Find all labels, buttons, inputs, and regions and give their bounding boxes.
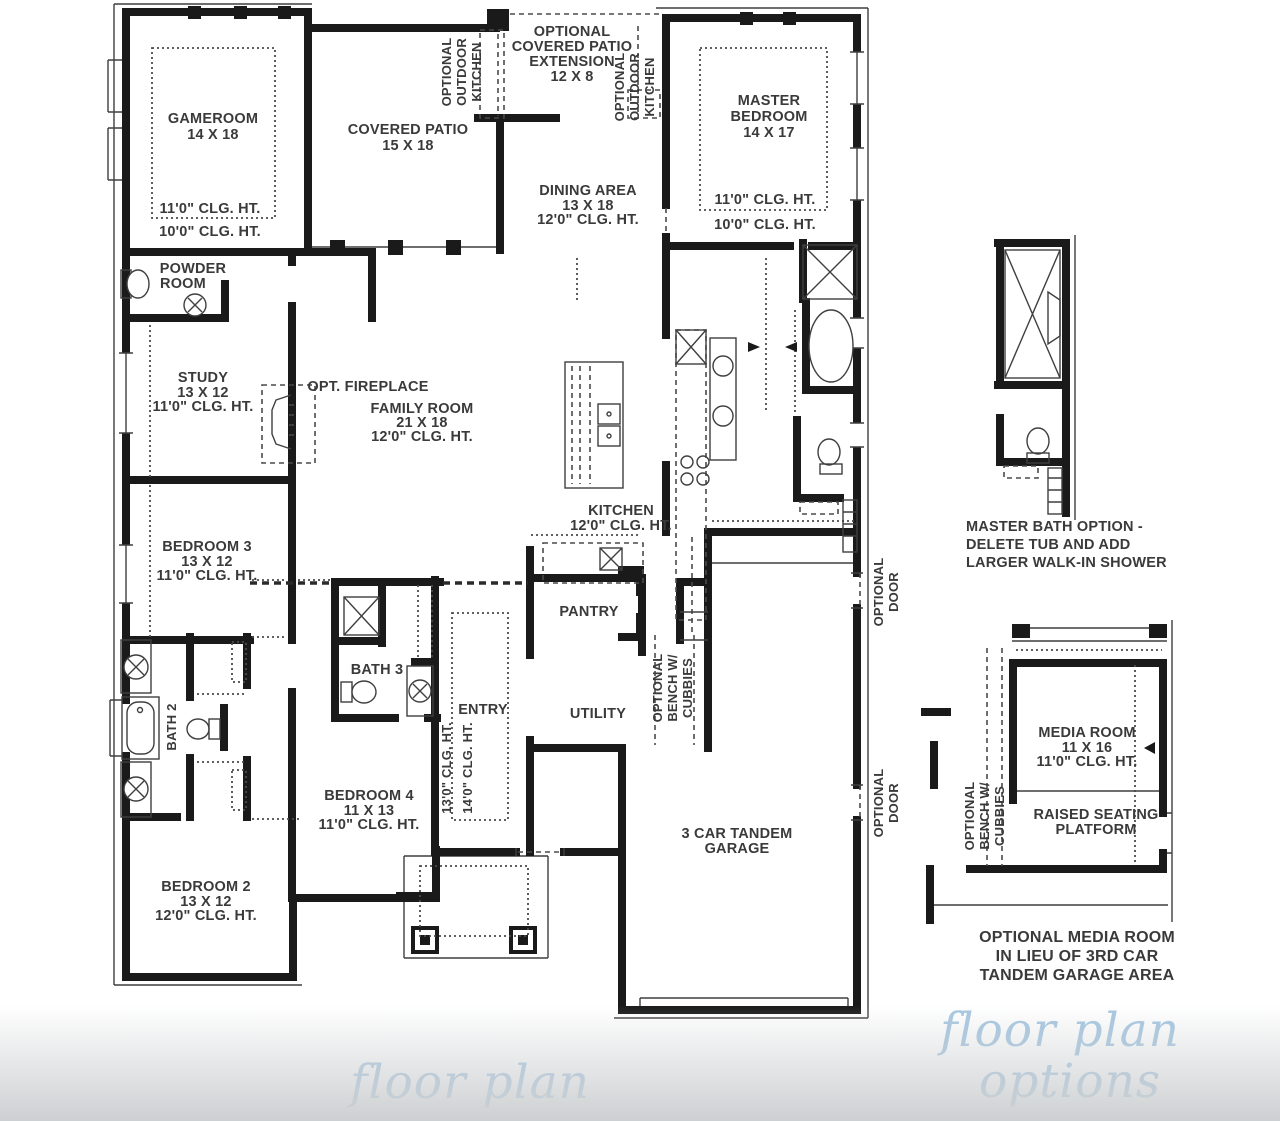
closet-rod-arrows: [748, 342, 797, 352]
master-bath-option-caption: MASTER BATH OPTION - DELETE TUB AND ADD …: [966, 519, 1167, 571]
outdoor-kitchen-right-label: KITCHEN: [642, 57, 657, 116]
post: [740, 12, 753, 25]
floor-plan-options-caption: floor plan: [937, 1003, 1180, 1058]
powder-toilet-icon: [184, 294, 206, 316]
master-vanity-icon: [710, 338, 736, 460]
options-bench-label: BENCH W/: [977, 782, 992, 850]
bath2-toilet-icon: [187, 719, 220, 739]
options-bench-label: CUBBIES: [992, 786, 1007, 846]
bench-cubbies-label: OPTIONAL: [650, 654, 665, 723]
bath3-label: BATH 3: [351, 662, 404, 678]
study-label: STUDY: [178, 370, 228, 386]
fireplace-label: OPT. FIREPLACE: [307, 379, 428, 395]
bath2-label: BATH 2: [164, 703, 179, 750]
bedroom3-label: BEDROOM 3: [162, 539, 252, 555]
patio-extension-label: EXTENSION: [529, 54, 615, 70]
outdoor-kitchen-left-label: KITCHEN: [469, 42, 484, 101]
dining-label: DINING AREA: [539, 183, 637, 199]
bedroom4-label: BEDROOM 4: [324, 788, 414, 804]
master-bath-caption-line: MASTER BATH OPTION -: [966, 519, 1143, 535]
media-room-clg: 11'0" CLG. HT.: [1037, 754, 1138, 770]
bedroom3-clg: 11'0" CLG. HT.: [157, 568, 258, 584]
kitchen-island-icon: [565, 362, 623, 488]
master-bedroom-label: MASTER: [738, 93, 801, 109]
floor-plan-caption: floor plan: [347, 1055, 590, 1110]
outdoor-kitchen-left-label: OUTDOOR: [454, 38, 469, 106]
master-bath-caption-line: LARGER WALK-IN SHOWER: [966, 555, 1167, 571]
media-room-label: MEDIA ROOM: [1038, 725, 1135, 741]
patio-post: [330, 240, 345, 255]
powder-room-label: POWDER: [160, 261, 227, 277]
post: [1012, 624, 1030, 638]
post: [278, 6, 291, 19]
master-bath-caption-line: DELETE TUB AND ADD: [966, 537, 1130, 553]
post: [1149, 624, 1167, 638]
gameroom-dims: 14 X 18: [187, 127, 238, 143]
raised-platform-label: RAISED SEATING: [1034, 807, 1159, 823]
master-bath-option-plan: MASTER BATH OPTION - DELETE TUB AND ADD …: [966, 235, 1167, 571]
floor-plan-drawing: GAMEROOM 14 X 18 11'0" CLG. HT. 10'0" CL…: [0, 0, 1280, 1121]
options-bench-label: OPTIONAL: [962, 782, 977, 851]
floor-plan-options-caption: options: [979, 1054, 1161, 1109]
kitchen-clg: 12'0" CLG. HT.: [570, 518, 672, 534]
media-caption-line: IN LIEU OF 3RD CAR: [996, 948, 1159, 965]
garage-label: 3 CAR TANDEM: [682, 826, 793, 842]
kitchen-label: KITCHEN: [588, 503, 654, 519]
media-room-option-plan: MEDIA ROOM 11 X 16 11'0" CLG. HT. RAISED…: [925, 620, 1175, 984]
outdoor-kitchen-left-label: OPTIONAL: [439, 38, 454, 107]
cooktop-icon: [681, 456, 709, 485]
media-caption-line: OPTIONAL MEDIA ROOM: [979, 929, 1175, 946]
bench-cubbies-label: BENCH W/: [665, 654, 680, 722]
bath3-sink-icon: [407, 666, 433, 716]
covered-patio-dims: 15 X 18: [382, 138, 433, 154]
entry-clg-a: 13'0" CLG. HT.: [439, 722, 454, 814]
media-caption-line: TANDEM GARAGE AREA: [980, 967, 1175, 984]
master-clg-upper: 11'0" CLG. HT.: [715, 192, 816, 208]
study-clg: 11'0" CLG. HT.: [153, 399, 254, 415]
kitchen-sink-icon: [600, 548, 622, 570]
option-toilet-icon: [1004, 428, 1062, 514]
porch-post: [511, 928, 535, 952]
outdoor-kitchen-right-label: OPTIONAL: [612, 53, 627, 122]
dining-clg: 12'0" CLG. HT.: [537, 212, 639, 228]
optional-door-upper-label: OPTIONAL: [871, 558, 886, 627]
optional-door-upper-label: DOOR: [886, 572, 901, 612]
bedroom2-clg: 12'0" CLG. HT.: [155, 908, 257, 924]
bath2-tub-icon: [122, 697, 159, 759]
bench-cubbies-label: CUBBIES: [680, 658, 695, 718]
patio-post: [446, 240, 461, 255]
bedroom2-label: BEDROOM 2: [161, 879, 251, 895]
main-floor-plan: GAMEROOM 14 X 18 11'0" CLG. HT. 10'0" CL…: [108, 4, 901, 1018]
master-clg-lower: 10'0" CLG. HT.: [714, 217, 816, 233]
patio-extension-label: COVERED PATIO: [512, 39, 633, 55]
entry-clg-b: 14'0" CLG. HT.: [460, 722, 475, 814]
post: [783, 12, 796, 25]
master-bedroom-label: BEDROOM: [730, 109, 807, 125]
bath3-toilet-icon: [341, 681, 376, 703]
optional-door-lower-label: DOOR: [886, 783, 901, 823]
master-bedroom-dims: 14 X 17: [743, 125, 794, 141]
refrigerator-icon: [676, 330, 706, 364]
gameroom-clg-lower: 10'0" CLG. HT.: [159, 224, 261, 240]
outdoor-kitchen-right-label: OUTDOOR: [627, 53, 642, 121]
walkin-shower-icon: [1005, 250, 1060, 378]
master-tub-icon: [809, 310, 853, 382]
patio-extension-dims: 12 X 8: [550, 69, 593, 85]
door-arrow-icon: [1144, 742, 1155, 754]
bedroom4-clg: 11'0" CLG. HT.: [319, 817, 420, 833]
pantry-label: PANTRY: [559, 604, 618, 620]
extension-post: [487, 9, 509, 31]
gameroom-clg-upper: 11'0" CLG. HT.: [160, 201, 261, 217]
porch-post: [413, 928, 437, 952]
media-room-labels: MEDIA ROOM 11 X 16 11'0" CLG. HT. RAISED…: [962, 725, 1175, 984]
master-shower-icon: [803, 245, 857, 299]
floor-plan-page: GAMEROOM 14 X 18 11'0" CLG. HT. 10'0" CL…: [0, 0, 1280, 1121]
main-plan-walls: [126, 12, 857, 1010]
patio-extension-label: OPTIONAL: [534, 24, 611, 40]
raised-platform-label: PLATFORM: [1055, 822, 1136, 838]
post: [234, 6, 247, 19]
garage-label: GARAGE: [705, 841, 770, 857]
patio-post: [388, 240, 403, 255]
post: [188, 6, 201, 19]
gameroom-label: GAMEROOM: [168, 111, 258, 127]
optional-door-lower-label: OPTIONAL: [871, 769, 886, 838]
covered-patio-label: COVERED PATIO: [348, 122, 469, 138]
utility-label: UTILITY: [570, 706, 626, 722]
window-gap: [850, 423, 864, 447]
family-room-clg: 12'0" CLG. HT.: [371, 429, 473, 445]
powder-room-label: ROOM: [160, 276, 206, 292]
entry-label: ENTRY: [458, 702, 508, 718]
bath3-shower-icon: [344, 597, 379, 635]
